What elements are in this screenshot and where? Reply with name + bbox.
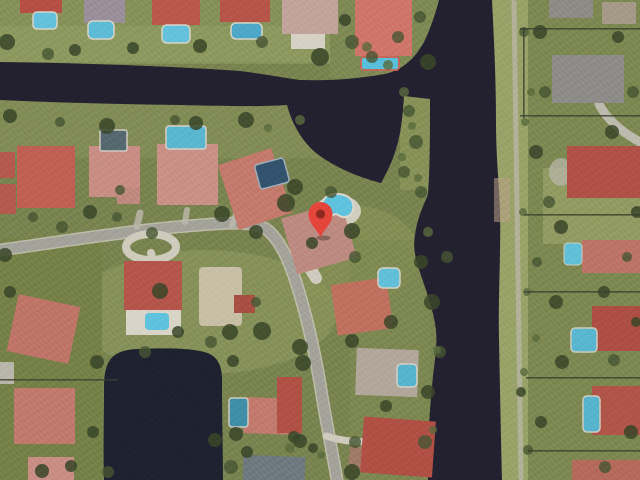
tree: [229, 427, 243, 441]
tree: [414, 11, 426, 23]
house-roof: [552, 55, 624, 103]
tree: [306, 237, 318, 249]
tree: [146, 227, 158, 239]
driveway: [185, 210, 187, 222]
palm-tree: [408, 122, 416, 130]
house-roof: [14, 388, 75, 444]
tree: [253, 322, 271, 340]
tree: [339, 14, 351, 26]
tree: [83, 205, 97, 219]
swimming-pool: [231, 23, 262, 39]
house-roof: [17, 146, 75, 208]
house-roof: [243, 455, 306, 480]
tree: [549, 295, 563, 309]
pin-shadow: [317, 236, 331, 241]
swimming-pool: [378, 268, 400, 288]
tree: [418, 435, 432, 449]
tree: [555, 355, 569, 369]
house-roof: [20, 0, 62, 13]
tree: [251, 297, 261, 307]
house-roof: [124, 261, 182, 310]
tree: [295, 355, 311, 371]
tree: [554, 220, 568, 234]
palm-tree: [398, 153, 406, 161]
tree: [409, 135, 423, 149]
tree: [238, 112, 254, 128]
tree: [532, 257, 542, 267]
tree: [622, 252, 632, 262]
house-roof: [0, 152, 15, 178]
tree: [249, 225, 263, 239]
tree: [344, 464, 360, 480]
tree: [205, 336, 217, 348]
tree: [256, 36, 268, 48]
palm-tree: [532, 334, 540, 342]
tree: [227, 355, 239, 367]
fence-line: [520, 28, 640, 30]
tree: [539, 86, 551, 98]
swimming-pool: [571, 328, 597, 352]
tree: [42, 48, 54, 60]
palm-tree: [399, 87, 409, 97]
tree: [208, 433, 222, 447]
palm-tree: [285, 443, 295, 453]
tree: [55, 117, 65, 127]
tree: [277, 194, 295, 212]
tree: [193, 39, 207, 53]
tree: [345, 35, 359, 49]
tree: [344, 223, 360, 239]
palm-tree: [423, 227, 433, 237]
tree: [392, 31, 404, 43]
tree: [612, 31, 624, 43]
house-roof: [157, 144, 218, 205]
swimming-pool: [145, 313, 169, 330]
tree: [292, 339, 308, 355]
tree: [115, 185, 125, 195]
tree: [139, 346, 151, 358]
tree: [170, 115, 180, 125]
fence-line: [523, 28, 525, 118]
fence-line: [526, 377, 640, 379]
palm-tree: [317, 451, 325, 459]
tree: [172, 326, 184, 338]
tree: [4, 286, 16, 298]
tree: [102, 466, 114, 478]
tree: [311, 48, 329, 66]
tree: [535, 416, 547, 428]
house-roof: [0, 362, 14, 384]
tree: [224, 460, 238, 474]
house-roof: [282, 0, 338, 34]
tree: [3, 109, 17, 123]
swimming-pool: [33, 12, 57, 29]
tree: [189, 116, 203, 130]
house-roof: [0, 184, 16, 214]
tree: [69, 44, 81, 56]
house-roof: [277, 377, 302, 433]
tree: [28, 212, 38, 222]
tree: [308, 443, 318, 453]
palm-tree: [520, 368, 528, 376]
tree: [112, 212, 122, 222]
tree: [222, 324, 238, 340]
tree: [415, 186, 427, 198]
driveway: [137, 213, 140, 226]
fence-line: [524, 214, 640, 216]
house-roof: [84, 0, 125, 23]
tree: [599, 461, 611, 473]
tree: [403, 105, 415, 117]
tree: [420, 54, 436, 70]
house-roof: [152, 0, 200, 25]
fence-line: [0, 379, 118, 381]
palm-tree: [433, 346, 441, 354]
palm-tree: [362, 42, 372, 52]
tree: [605, 125, 619, 139]
tree: [349, 251, 361, 263]
tree: [349, 436, 361, 448]
palm-tree: [429, 426, 437, 434]
tree: [366, 51, 378, 63]
tree: [441, 251, 453, 263]
fence-line: [520, 115, 640, 117]
swimming-pool: [583, 396, 600, 432]
tree: [214, 206, 230, 222]
palm-tree: [295, 115, 305, 125]
swimming-pool: [88, 21, 114, 39]
tree: [65, 460, 77, 472]
tree: [241, 446, 253, 458]
tree: [384, 315, 398, 329]
tree: [90, 355, 104, 369]
tree: [380, 400, 392, 412]
tree: [414, 255, 428, 269]
pin-center-dot: [316, 209, 325, 218]
map-viewport[interactable]: [0, 0, 640, 480]
tree: [516, 387, 526, 397]
swimming-pool: [229, 398, 248, 427]
swimming-pool: [397, 364, 417, 387]
palm-tree: [527, 88, 535, 96]
house-roof: [220, 0, 270, 22]
pond: [104, 348, 223, 480]
bank-patch: [494, 178, 510, 222]
palm-tree: [383, 60, 393, 70]
tree: [288, 431, 300, 443]
tree: [627, 86, 639, 98]
fence-line: [528, 450, 640, 452]
tree: [424, 294, 440, 310]
tree: [152, 283, 168, 299]
swimming-pool: [162, 25, 190, 43]
fence-line: [524, 291, 640, 293]
house-roof: [602, 2, 636, 24]
tree: [624, 425, 638, 439]
tree: [533, 25, 547, 39]
tree: [287, 179, 303, 195]
palm-tree: [521, 118, 529, 126]
tree: [35, 464, 49, 478]
swimming-pool: [564, 243, 582, 265]
house-roof: [549, 0, 593, 18]
satellite-canvas: [0, 0, 640, 480]
palm-tree: [264, 124, 272, 132]
pool-deck: [291, 32, 325, 49]
tree: [529, 145, 543, 159]
tree: [56, 221, 68, 233]
tree: [127, 42, 139, 54]
tree: [608, 354, 620, 366]
tree: [398, 166, 410, 178]
palm-tree: [414, 174, 422, 182]
house-roof: [592, 306, 640, 351]
tree: [87, 426, 99, 438]
swimming-pool: [166, 126, 206, 149]
house-roof: [567, 146, 640, 198]
tree: [421, 385, 435, 399]
tree: [99, 118, 115, 134]
tree: [345, 334, 359, 348]
tree: [543, 196, 555, 208]
tree: [325, 186, 337, 198]
